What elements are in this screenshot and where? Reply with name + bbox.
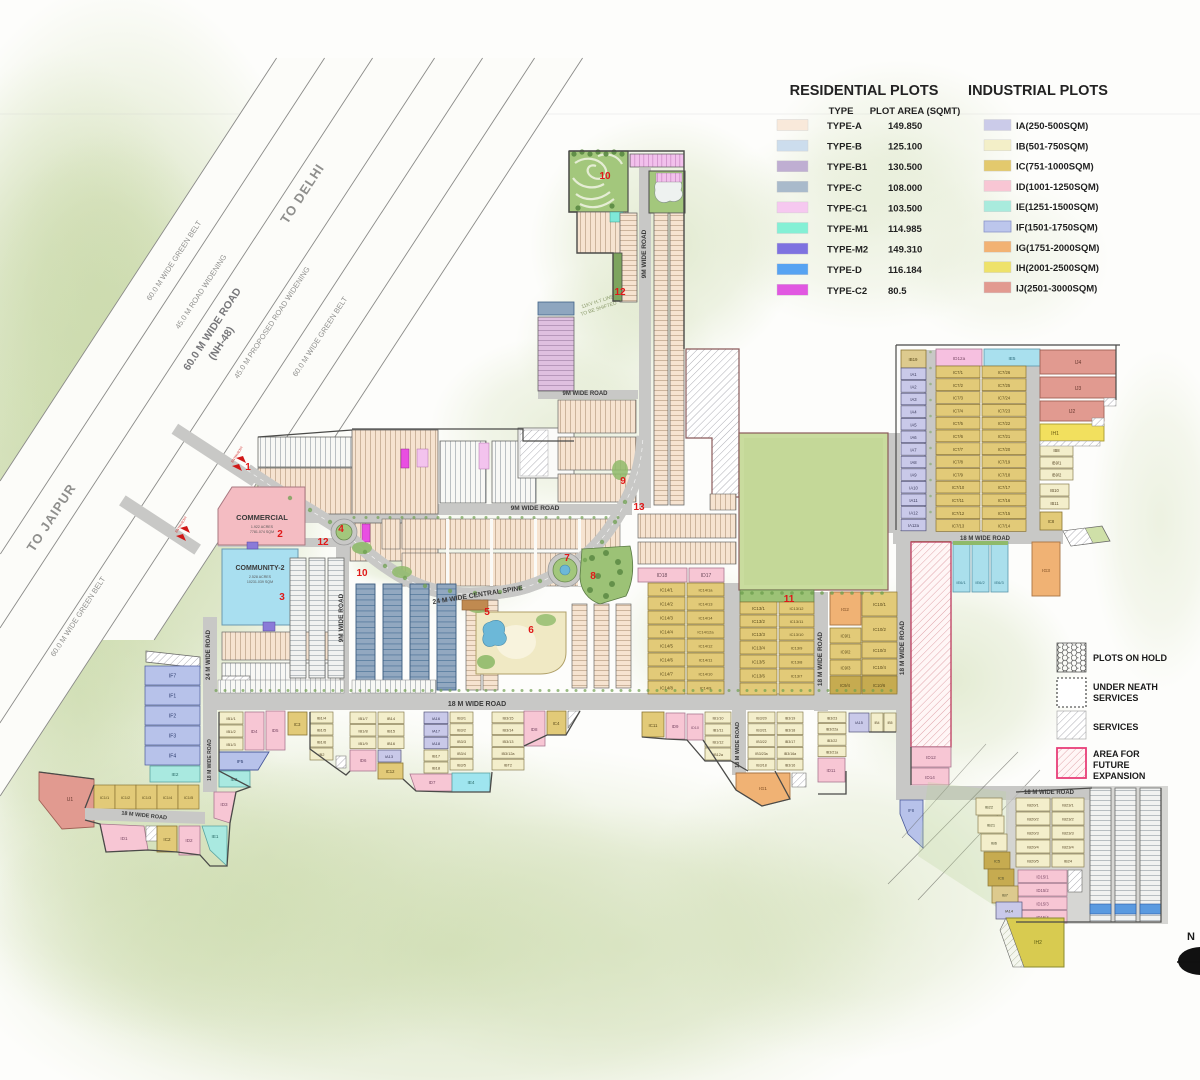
svg-text:1: 1 [245,462,251,473]
svg-text:IA18: IA18 [432,741,441,746]
svg-text:IB18: IB18 [432,766,441,771]
svg-text:IC2: IC2 [163,837,171,842]
svg-text:IB16: IB16 [387,741,396,746]
svg-text:9M WIDE ROAD: 9M WIDE ROAD [338,593,345,642]
svg-text:ID9: ID9 [672,724,679,729]
svg-text:18 M WIDE ROAD: 18 M WIDE ROAD [960,536,1011,542]
svg-text:IB3/23a: IB3/23a [755,752,767,756]
svg-text:18 M WIDE ROAD: 18 M WIDE ROAD [1024,790,1075,796]
svg-text:IA10: IA10 [909,485,918,490]
svg-text:IC13/6: IC13/6 [752,674,765,679]
svg-text:IB9/1: IB9/1 [1052,461,1062,466]
svg-text:IC13/12: IC13/12 [789,606,804,611]
svg-text:IA14: IA14 [1005,909,1014,914]
svg-text:IB9/2: IB9/2 [1052,473,1062,478]
svg-text:U1: U1 [67,797,74,803]
svg-text:IC14/1: IC14/1 [660,588,673,593]
svg-text:IB3/21: IB3/21 [756,728,766,732]
svg-text:IB3/18: IB3/18 [756,764,766,768]
svg-text:IC(751-1000SQM): IC(751-1000SQM) [1016,162,1094,173]
svg-text:ID(1001-1250SQM): ID(1001-1250SQM) [1016,182,1099,193]
svg-text:8: 8 [590,571,596,582]
svg-text:ID12: ID12 [926,755,936,760]
svg-text:IC1/5: IC1/5 [184,795,194,800]
svg-text:IC7/8: IC7/8 [953,460,964,465]
svg-text:IA16: IA16 [432,716,441,721]
svg-text:18 M WIDE ROAD: 18 M WIDE ROAD [448,701,506,708]
svg-text:IC7/3: IC7/3 [953,396,964,401]
svg-text:IA17: IA17 [432,729,441,734]
svg-text:IA6: IA6 [910,435,917,440]
svg-text:18 M WIDE ROAD: 18 M WIDE ROAD [735,722,741,768]
svg-text:IE5: IE5 [1009,356,1016,361]
svg-text:IB14: IB14 [387,716,396,721]
svg-text:ID15/3: ID15/3 [1036,901,1049,906]
svg-text:IC7/12: IC7/12 [952,511,965,516]
svg-text:IA8: IA8 [910,460,917,465]
svg-text:ID15/1: ID15/1 [1036,874,1049,879]
svg-text:ID11: ID11 [827,768,837,773]
svg-text:IC7/1: IC7/1 [953,370,964,375]
svg-text:IC7/5: IC7/5 [953,421,964,426]
svg-text:IC7/15: IC7/15 [998,511,1011,516]
svg-text:IC14/13: IC14/13 [698,602,713,607]
svg-text:COMMUNITY-2: COMMUNITY-2 [236,565,285,572]
svg-text:ID8: ID8 [531,727,538,732]
svg-text:12: 12 [614,287,626,298]
svg-text:TYPE: TYPE [829,106,854,117]
svg-text:IB22: IB22 [985,805,994,810]
svg-text:IC7/21: IC7/21 [998,434,1011,439]
svg-text:IB1/7: IB1/7 [358,716,368,721]
svg-text:108.000: 108.000 [888,183,922,194]
svg-text:IA5: IA5 [910,422,917,427]
svg-text:IB3/22a: IB3/22a [826,728,838,732]
svg-text:IB5: IB5 [887,721,892,725]
svg-text:COMMERCIAL: COMMERCIAL [236,513,288,522]
svg-text:IB3/1: IB3/1 [457,717,466,721]
svg-text:IB1/2: IB1/2 [226,729,236,734]
svg-text:IA4: IA4 [910,410,917,415]
svg-text:IE4: IE4 [468,780,475,785]
svg-text:IB11: IB11 [1050,501,1059,506]
svg-text:9M WIDE ROAD: 9M WIDE ROAD [641,229,648,278]
svg-text:ID4: ID4 [251,729,258,734]
svg-text:IJ2: IJ2 [1069,409,1076,415]
svg-text:IC7/24: IC7/24 [998,396,1011,401]
svg-text:ID7: ID7 [429,780,436,785]
svg-text:IC14/10: IC14/10 [698,672,713,677]
svg-text:ID3: ID3 [220,802,228,807]
svg-text:IB24: IB24 [1064,859,1073,864]
svg-text:IA1: IA1 [910,372,917,377]
svg-text:IF3: IF3 [169,734,176,740]
svg-text:IC7/20: IC7/20 [998,447,1011,452]
svg-text:149.850: 149.850 [888,121,922,132]
svg-text:6: 6 [528,625,534,636]
svg-text:ID17: ID17 [701,573,712,579]
svg-text:103.500: 103.500 [888,203,922,214]
svg-text:IC1/1: IC1/1 [100,795,110,800]
svg-text:IB1/1: IB1/1 [226,716,236,721]
svg-text:114.985: 114.985 [888,224,923,235]
svg-text:IC14/1a: IC14/1a [698,588,713,593]
svg-text:IC4: IC4 [553,721,560,726]
svg-text:TYPE-C2: TYPE-C2 [827,286,867,297]
svg-text:IB20/1: IB20/1 [1027,803,1039,808]
svg-text:IG(1751-2000SQM): IG(1751-2000SQM) [1016,243,1099,254]
svg-text:IC13/9: IC13/9 [791,646,804,651]
svg-text:IC7/9: IC7/9 [953,472,964,477]
svg-text:IC13/1: IC13/1 [752,606,765,611]
svg-text:ID12a: ID12a [953,356,966,361]
svg-text:IF(1501-1750SQM): IF(1501-1750SQM) [1016,223,1098,234]
svg-text:IC13/8: IC13/8 [791,660,804,665]
svg-text:TYPE-B1: TYPE-B1 [827,162,868,173]
svg-text:IB3/16: IB3/16 [785,764,795,768]
svg-text:IB23/4: IB23/4 [1062,845,1074,850]
svg-text:IC14/12: IC14/12 [698,644,713,649]
svg-text:IB20/4: IB20/4 [1027,845,1039,850]
svg-text:IC9/1: IC9/1 [840,634,851,639]
svg-text:PLOT AREA (SQMT): PLOT AREA (SQMT) [870,106,961,117]
svg-text:125.100: 125.100 [888,142,922,153]
svg-text:IA12: IA12 [909,511,918,516]
svg-text:IB3/14: IB3/14 [503,728,514,732]
svg-text:IC7/14: IC7/14 [998,524,1011,529]
svg-text:TYPE-C1: TYPE-C1 [827,203,868,214]
svg-text:IB20/5: IB20/5 [1027,859,1039,864]
svg-text:IE2: IE2 [172,772,179,777]
svg-text:IC7/16: IC7/16 [998,498,1011,503]
svg-text:SERVICES: SERVICES [1093,693,1138,703]
svg-text:IB3/21a: IB3/21a [826,751,838,755]
svg-text:IC14/11: IC14/11 [699,658,713,663]
svg-text:IB1/12: IB1/12 [713,741,724,745]
svg-text:IC10/1: IC10/1 [873,602,886,607]
svg-text:IB20/2: IB20/2 [1027,817,1039,822]
svg-text:IC12: IC12 [386,769,396,774]
svg-text:IF5: IF5 [237,759,244,764]
svg-text:149.310: 149.310 [888,245,922,256]
svg-text:9: 9 [620,476,626,487]
svg-text:IA7: IA7 [910,448,917,453]
svg-text:10: 10 [599,171,611,182]
svg-text:IC1/2: IC1/2 [121,795,131,800]
svg-text:IH(2001-2500SQM): IH(2001-2500SQM) [1016,263,1099,274]
svg-text:IC10/3: IC10/3 [873,648,886,653]
svg-text:116.184: 116.184 [888,265,923,276]
svg-text:7: 7 [564,553,570,564]
svg-text:2: 2 [277,529,283,540]
svg-text:PLOTS ON HOLD: PLOTS ON HOLD [1093,653,1168,663]
svg-text:N: N [1187,931,1195,943]
svg-text:IB3/4: IB3/4 [457,752,466,756]
svg-text:24 M WIDE ROAD: 24 M WIDE ROAD [206,629,212,680]
svg-text:IB1/3: IB1/3 [226,742,236,747]
svg-text:IE6/3: IE6/3 [994,580,1004,585]
svg-text:IB3/13: IB3/13 [503,740,514,744]
svg-text:IA12a: IA12a [908,523,920,528]
svg-text:IB8: IB8 [1053,448,1060,453]
svg-text:IC14/3: IC14/3 [660,616,673,621]
svg-text:IC7/11: IC7/11 [952,498,965,503]
svg-text:INDUSTRIAL PLOTS: INDUSTRIAL PLOTS [968,83,1108,99]
svg-text:FUTURE: FUTURE [1093,760,1130,770]
svg-text:IB23/3: IB23/3 [1062,831,1074,836]
svg-text:TYPE-D: TYPE-D [827,265,862,276]
svg-text:IG2: IG2 [841,607,849,613]
svg-text:IC7/7: IC7/7 [953,447,964,452]
svg-text:12: 12 [317,537,329,548]
svg-text:IC7/19: IC7/19 [998,460,1011,465]
svg-text:IC7/26: IC7/26 [998,370,1011,375]
svg-text:IC13/7: IC13/7 [791,674,804,679]
svg-text:4: 4 [338,524,344,535]
svg-text:3: 3 [279,592,285,603]
svg-text:TYPE-M2: TYPE-M2 [827,245,868,256]
svg-text:IB(501-750SQM): IB(501-750SQM) [1016,141,1088,152]
svg-text:IC14/12a: IC14/12a [697,630,714,635]
svg-text:TYPE-A: TYPE-A [827,121,862,132]
svg-text:IG3: IG3 [1042,568,1050,574]
svg-text:9M WIDE ROAD: 9M WIDE ROAD [511,505,560,512]
svg-text:IC14/7: IC14/7 [660,672,673,677]
svg-text:IB1/8: IB1/8 [358,728,368,733]
svg-text:IC13/11: IC13/11 [790,619,804,624]
svg-text:IB23/2: IB23/2 [1062,817,1074,822]
svg-text:IF8: IF8 [908,808,915,813]
svg-text:IC9/3: IC9/3 [840,666,851,671]
svg-text:IC1/4: IC1/4 [163,795,173,800]
svg-text:IC7/6: IC7/6 [953,434,964,439]
svg-text:IC7/25: IC7/25 [998,383,1011,388]
svg-text:ID10: ID10 [691,726,699,730]
svg-text:10: 10 [356,568,368,579]
svg-text:IC1/3: IC1/3 [142,795,152,800]
svg-text:IC10/6: IC10/6 [873,683,886,688]
svg-text:IH1: IH1 [1051,431,1059,437]
svg-text:IB3/15: IB3/15 [503,717,514,721]
svg-text:IC3: IC3 [294,722,301,727]
svg-text:IJ4: IJ4 [1075,360,1082,366]
svg-text:IF4: IF4 [169,754,176,760]
svg-text:IA3: IA3 [910,397,917,402]
svg-text:IB15: IB15 [387,728,396,733]
svg-text:IB1/6: IB1/6 [317,740,327,745]
svg-text:7781.074 SQM: 7781.074 SQM [250,530,274,534]
svg-text:ID5: ID5 [272,728,279,733]
svg-text:ID6: ID6 [360,758,367,763]
svg-text:IB3/2: IB3/2 [457,728,466,732]
svg-text:IA11: IA11 [909,498,918,503]
svg-text:IB4: IB4 [874,721,879,725]
svg-text:18 M WIDE ROAD: 18 M WIDE ROAD [207,739,213,781]
svg-text:IE6/2: IE6/2 [975,580,985,585]
svg-text:ID15/2: ID15/2 [1036,888,1049,893]
svg-text:IC5: IC5 [994,859,1001,864]
svg-text:SERVICES: SERVICES [1093,722,1138,732]
svg-text:ID1: ID1 [120,836,128,841]
svg-text:IC14/6: IC14/6 [660,658,673,663]
svg-text:9M WIDE ROAD: 9M WIDE ROAD [563,391,609,397]
svg-text:IC7/22: IC7/22 [998,421,1011,426]
svg-text:IB6: IB6 [991,841,998,846]
svg-text:IC7/23: IC7/23 [998,408,1011,413]
svg-text:IB1/9: IB1/9 [358,741,368,746]
svg-text:IC14/14: IC14/14 [698,616,713,621]
svg-text:18 M WIDE ROAD: 18 M WIDE ROAD [899,621,906,675]
svg-text:IC14/5: IC14/5 [660,644,673,649]
svg-text:IB3/22: IB3/22 [756,740,766,744]
svg-text:IE(1251-1500SQM): IE(1251-1500SQM) [1016,202,1098,213]
svg-text:IB20/3: IB20/3 [1027,831,1039,836]
svg-text:IC14/4: IC14/4 [660,630,673,635]
svg-text:IA2: IA2 [910,385,917,390]
svg-text:18 M WIDE ROAD: 18 M WIDE ROAD [817,632,824,686]
svg-text:130.500: 130.500 [888,162,922,173]
svg-text:IH2: IH2 [1034,940,1042,946]
svg-text:IC10/4: IC10/4 [873,665,886,670]
svg-text:IC13/2: IC13/2 [752,619,765,624]
svg-text:5: 5 [484,607,490,618]
svg-text:10231.039 SQM: 10231.039 SQM [247,580,273,584]
svg-text:IA13: IA13 [385,754,394,759]
svg-text:IF1: IF1 [169,694,176,700]
svg-text:IJ3: IJ3 [1075,386,1082,392]
svg-text:IB3/3: IB3/3 [457,740,466,744]
svg-text:EXPANSION: EXPANSION [1093,771,1145,781]
svg-text:IF2: IF2 [169,714,176,720]
svg-text:1.922 ACRES: 1.922 ACRES [251,525,274,529]
svg-text:IB23/1: IB23/1 [1062,803,1074,808]
svg-text:IC13/3: IC13/3 [752,632,765,637]
svg-text:RESIDENTIAL PLOTS: RESIDENTIAL PLOTS [790,83,939,99]
svg-text:IB7: IB7 [1002,893,1009,898]
svg-text:IA(250-500SQM): IA(250-500SQM) [1016,121,1088,132]
svg-text:TYPE-B: TYPE-B [827,142,862,153]
svg-text:IC14/2: IC14/2 [660,602,673,607]
svg-text:IB1/4: IB1/4 [317,716,327,721]
svg-text:IB1/5: IB1/5 [317,728,327,733]
svg-text:IC7/10: IC7/10 [952,485,965,490]
svg-text:IA9: IA9 [910,473,917,478]
svg-text:IE1: IE1 [212,834,219,839]
svg-text:IG1: IG1 [759,786,767,792]
svg-text:13: 13 [633,502,645,513]
svg-text:IF7: IF7 [169,674,176,680]
svg-text:IJ(2501-3000SQM): IJ(2501-3000SQM) [1016,283,1097,294]
svg-text:IB1/11: IB1/11 [713,729,724,733]
svg-text:IC7/13: IC7/13 [952,524,965,529]
svg-text:11: 11 [784,594,795,605]
svg-text:UNDER NEATH: UNDER NEATH [1093,682,1158,692]
svg-text:IBT2: IBT2 [504,764,512,768]
svg-text:IC7/17: IC7/17 [998,485,1011,490]
svg-text:IC8: IC8 [1048,519,1055,524]
svg-text:IB3/19: IB3/19 [785,717,795,721]
svg-text:IB17: IB17 [432,754,441,759]
svg-text:IB1/10: IB1/10 [713,717,724,721]
svg-text:IC13/4: IC13/4 [752,646,765,651]
svg-text:IC13/5: IC13/5 [752,660,765,665]
svg-text:IC9/4: IC9/4 [840,683,851,688]
svg-text:IB3/22: IB3/22 [827,739,837,743]
svg-text:IC7/4: IC7/4 [953,408,964,413]
svg-text:IE6/1: IE6/1 [956,580,966,585]
svg-text:IB3/20: IB3/20 [756,717,766,721]
svg-text:TYPE-M1: TYPE-M1 [827,224,869,235]
svg-text:IC9/2: IC9/2 [840,650,851,655]
svg-text:ID14: ID14 [925,775,935,780]
svg-text:IB3/12a: IB3/12a [501,752,515,756]
svg-text:ID2: ID2 [185,838,193,843]
svg-text:AREA FOR: AREA FOR [1093,749,1140,759]
svg-text:IC10/2: IC10/2 [873,627,886,632]
svg-text:IB3/5: IB3/5 [457,764,466,768]
svg-text:IC7/2: IC7/2 [953,383,964,388]
svg-text:TYPE-C: TYPE-C [827,183,862,194]
svg-text:80.5: 80.5 [888,286,907,297]
svg-text:IC11: IC11 [649,723,659,728]
svg-text:IB19: IB19 [908,357,918,362]
svg-text:IA15: IA15 [855,721,863,725]
svg-text:IB10: IB10 [1050,488,1059,493]
svg-text:IC13/10: IC13/10 [789,632,804,637]
svg-text:2.528 ACRES: 2.528 ACRES [249,575,272,579]
svg-text:IC7/18: IC7/18 [998,472,1011,477]
svg-text:ID18: ID18 [657,573,668,579]
svg-text:IB21: IB21 [987,823,996,828]
svg-text:IB3/18: IB3/18 [785,728,795,732]
svg-text:IB3/16a: IB3/16a [784,752,796,756]
svg-text:IC6: IC6 [998,876,1005,881]
svg-text:IB3/23: IB3/23 [827,716,837,720]
svg-text:IB3/17: IB3/17 [785,740,795,744]
